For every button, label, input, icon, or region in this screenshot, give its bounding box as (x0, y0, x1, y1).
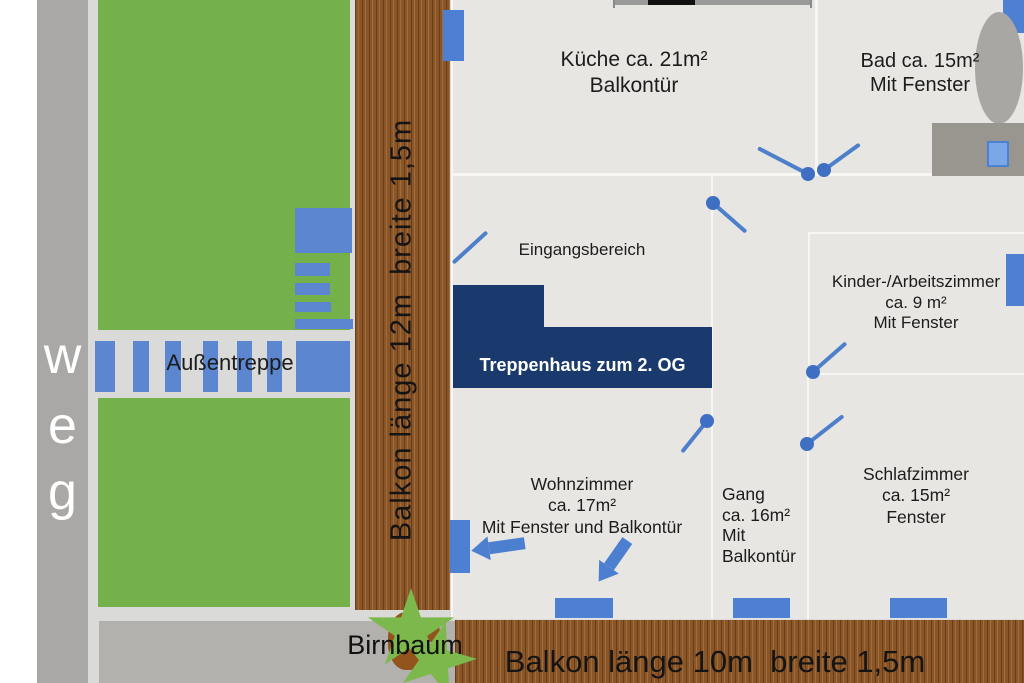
kueche-line1: Küche ca. 21m² (452, 47, 816, 73)
bad-line1: Bad ca. 15m² (816, 49, 1024, 73)
bad-window-marker (987, 141, 1009, 167)
balkon-left-label: Balkon länge 12m breite 1,5m (386, 119, 419, 541)
door-hinge-gang-top (706, 196, 720, 210)
weg-letter-e: e (37, 400, 88, 452)
birnbaum-label: Birnbaum (340, 630, 470, 661)
kueche-label: Küche ca. 21m² Balkontür (452, 47, 816, 98)
door-hinge-bad (817, 163, 831, 177)
door-hinge-kueche (801, 167, 815, 181)
balkon-bottom-label: Balkon länge 10m breite 1,5m (455, 644, 975, 680)
stair-step (295, 319, 353, 329)
stair-step (295, 263, 330, 276)
eingangsbereich-label: Eingangsbereich (452, 240, 712, 261)
bad-line2: Mit Fenster (816, 73, 1024, 97)
kueche-line2: Balkontür (452, 73, 816, 99)
stair-platform (295, 208, 352, 253)
kinderzimmer-line3: Mit Fenster (808, 313, 1024, 334)
door-hinge-schlafzimmer (800, 437, 814, 451)
wohnzimmer-bottom-door-marker (555, 598, 613, 618)
gang-balkontuer-marker (733, 598, 790, 618)
kinderzimmer-line1: Kinder-/Arbeitszimmer (808, 272, 1024, 293)
kitchen-counter (615, 0, 810, 5)
door-hinge-kinderzimmer (806, 365, 820, 379)
schlafzimmer-window-marker (890, 598, 947, 618)
gang-line1: Gang (722, 484, 812, 505)
schlafzimmer-line1: Schlafzimmer (808, 464, 1024, 485)
aussentreppe-label: Außentreppe (120, 350, 340, 377)
weg-letter-g: g (37, 466, 88, 518)
weg-letter-w: w (37, 330, 88, 382)
gang-line3: Mit (722, 525, 812, 546)
kinderzimmer-label: Kinder-/Arbeitszimmer ca. 9 m² Mit Fenst… (808, 272, 1024, 334)
treppenhaus-block-upper (453, 285, 544, 330)
bad-label: Bad ca. 15m² Mit Fenster (816, 49, 1024, 98)
schlafzimmer-line2: ca. 15m² (808, 485, 1024, 506)
stair-step (295, 302, 331, 312)
garden-upper (98, 0, 350, 330)
stair-step (295, 283, 330, 295)
stair-step (95, 341, 115, 392)
garden-lower (98, 398, 350, 607)
door-hinge-wohnzimmer (700, 414, 714, 428)
wohnzimmer-line3: Mit Fenster und Balkontür (452, 517, 712, 538)
schlafzimmer-label: Schlafzimmer ca. 15m² Fenster (808, 464, 1024, 528)
floor-plan: w e g Treppenhaus zum 2. OG (0, 0, 1024, 683)
wohnzimmer-label: Wohnzimmer ca. 17m² Mit Fenster und Balk… (452, 474, 712, 538)
kinderzimmer-line2: ca. 9 m² (808, 293, 1024, 314)
gang-line2: ca. 16m² (722, 505, 812, 526)
stove-icon (648, 0, 695, 5)
wohnzimmer-line2: ca. 17m² (452, 495, 712, 516)
treppenhaus-label: Treppenhaus zum 2. OG (453, 355, 712, 377)
bath-vanity (932, 123, 1024, 176)
schlafzimmer-line3: Fenster (808, 507, 1024, 528)
counter-wall-nub (810, 0, 812, 8)
gang-label: Gang ca. 16m² Mit Balkontür (722, 484, 812, 567)
gang-line4: Balkontür (722, 546, 812, 567)
wohnzimmer-line1: Wohnzimmer (452, 474, 712, 495)
